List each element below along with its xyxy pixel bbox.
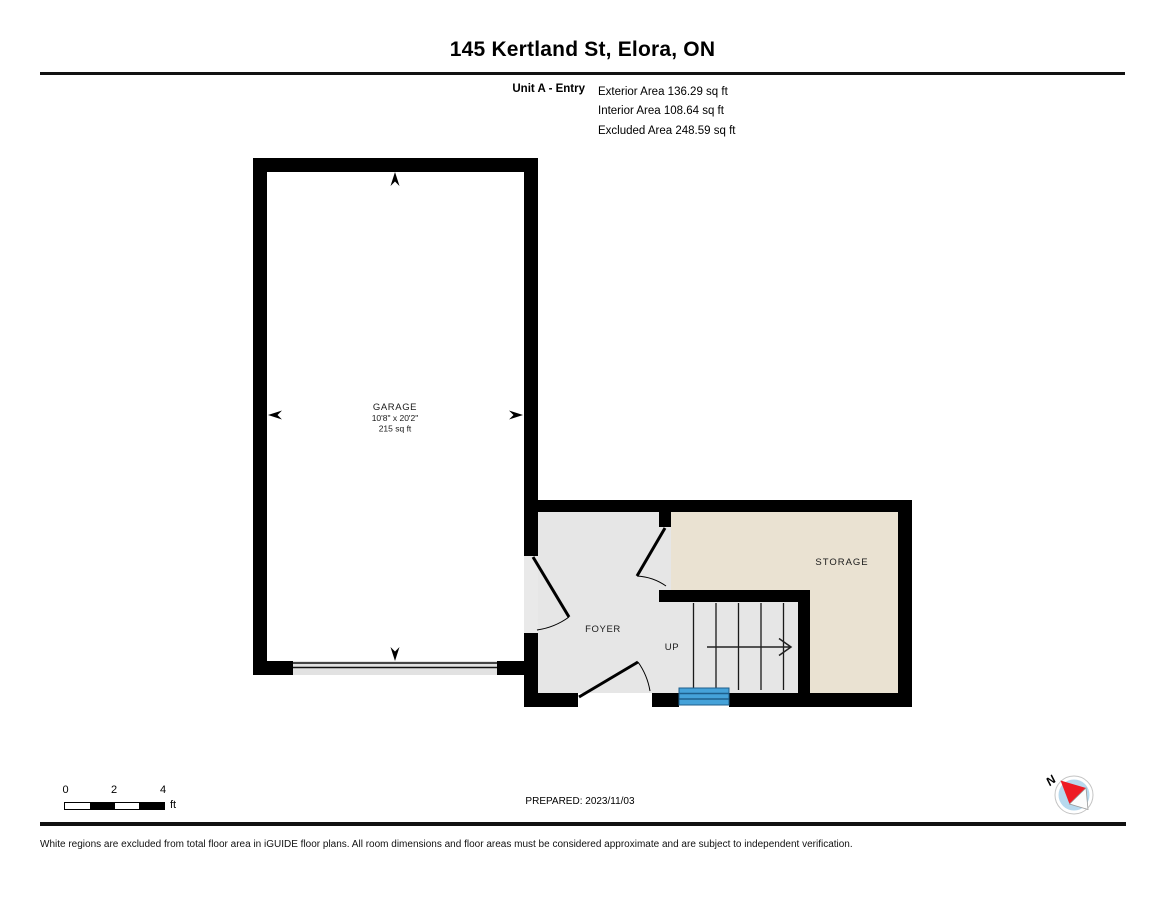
garage-wall-bottom-left (253, 661, 293, 675)
scale-bar: 0 2 4 ft (58, 784, 198, 814)
compass-north-label: N (1043, 772, 1059, 789)
garage-dimensions: 10'8" x 20'2" (372, 413, 419, 423)
scale-segment (115, 803, 140, 809)
entry-steps (679, 688, 729, 705)
garage-door (293, 661, 497, 675)
area-summary: Exterior Area 136.29 sq ft Interior Area… (598, 83, 735, 141)
area-line-excluded: Excluded Area 248.59 sq ft (598, 122, 735, 141)
area-line-exterior: Exterior Area 136.29 sq ft (598, 83, 735, 102)
scale-tick-0: 0 (59, 784, 73, 796)
dimension-arrow-up-icon (391, 172, 400, 186)
compass-icon: N (1042, 766, 1106, 824)
scale-segment (139, 803, 164, 809)
title-divider (40, 72, 1125, 75)
scale-tick-2: 2 (107, 784, 121, 796)
garage-label: GARAGE (373, 402, 417, 413)
scale-unit-label: ft (170, 799, 176, 811)
garage-doorway-floor (524, 556, 538, 633)
footer-divider (40, 822, 1126, 826)
entry-wall-top (524, 500, 912, 512)
floor-plan-page: 145 Kertland St, Elora, ON Unit A - Entr… (0, 0, 1165, 900)
dimension-arrow-right-icon (509, 411, 523, 420)
page-title: 145 Kertland St, Elora, ON (0, 38, 1165, 62)
entry-wall-bottom-3 (729, 693, 912, 707)
foyer-label: FOYER (585, 624, 621, 635)
floor-plan-drawing: GARAGE 10'8" x 20'2" 215 sq ft FOYER UP … (245, 150, 920, 715)
storage-label: STORAGE (815, 557, 868, 568)
stairs-wall-right (798, 602, 810, 707)
garage-wall-top (253, 158, 538, 172)
area-line-interior: Interior Area 108.64 sq ft (598, 102, 735, 121)
garage-area: 215 sq ft (379, 424, 412, 434)
dimension-arrow-down-icon (391, 647, 400, 661)
prepared-date: PREPARED: 2023/11/03 (455, 796, 705, 807)
storage-wall-horizontal (659, 590, 810, 602)
storage-floor-upper (671, 512, 898, 590)
entry-steps-block (679, 688, 729, 705)
scale-bar-segments (64, 802, 165, 810)
garage-wall-right (524, 158, 538, 556)
garage-wall-left (253, 158, 267, 675)
disclaimer-text: White regions are excluded from total fl… (40, 839, 853, 850)
scale-segment (65, 803, 90, 809)
entry-wall-right (898, 500, 912, 707)
scale-segment (90, 803, 115, 809)
dimension-arrow-left-icon (268, 411, 282, 420)
storage-door-stub (659, 512, 671, 527)
unit-label: Unit A - Entry (385, 83, 585, 95)
entry-wall-bottom-2 (652, 693, 679, 707)
storage-floor-lower (810, 590, 898, 695)
entry-wall-bottom-1 (524, 693, 578, 707)
scale-tick-4: 4 (156, 784, 170, 796)
up-label: UP (665, 642, 679, 653)
